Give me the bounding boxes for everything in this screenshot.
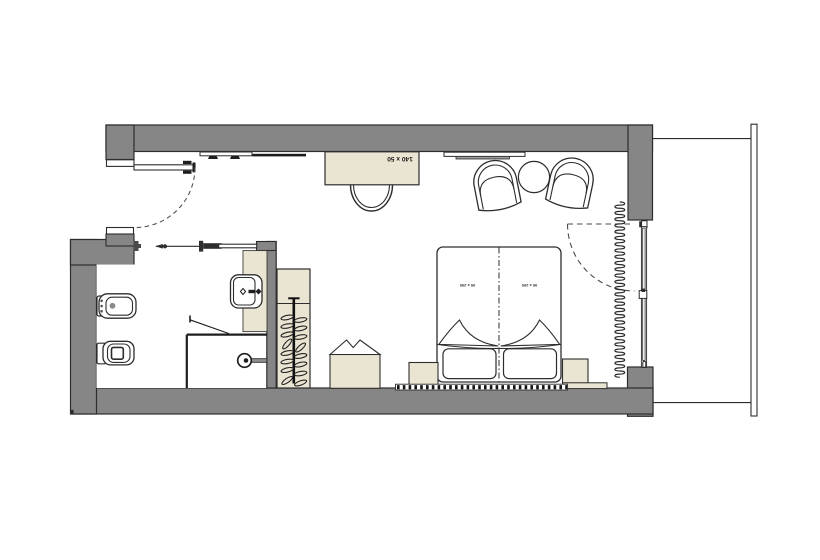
- svg-text:90 x 200: 90 x 200: [459, 283, 475, 288]
- svg-text:90 x 200: 90 x 200: [521, 283, 537, 288]
- svg-text:140 x 50: 140 x 50: [387, 155, 413, 162]
